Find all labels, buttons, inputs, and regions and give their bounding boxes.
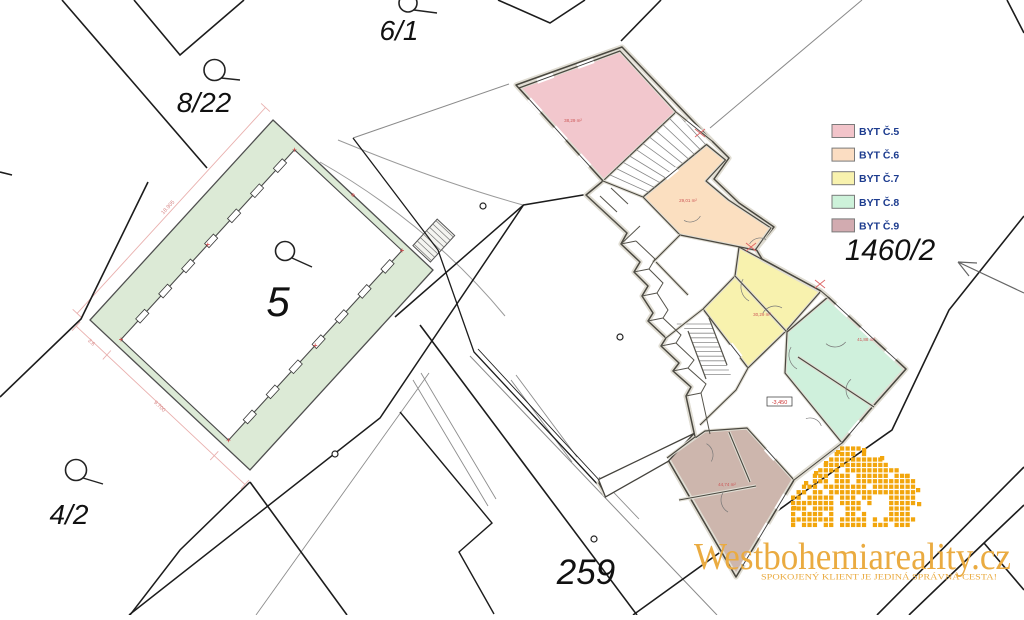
svg-text:BYT Č.5: BYT Č.5 [859, 125, 899, 138]
svg-text:44,74 m²: 44,74 m² [718, 482, 736, 487]
svg-text:30,29 m²: 30,29 m² [753, 312, 771, 317]
svg-text:-3,450: -3,450 [772, 400, 788, 406]
svg-text:BYT Č.6: BYT Č.6 [859, 149, 899, 162]
svg-text:38,29 m²: 38,29 m² [564, 118, 582, 123]
svg-text:5: 5 [266, 278, 290, 325]
svg-text:41,88 m²: 41,88 m² [857, 337, 875, 342]
svg-text:1460/2: 1460/2 [845, 234, 935, 267]
svg-text:6/1: 6/1 [380, 15, 419, 46]
svg-text:29,01 m²: 29,01 m² [679, 198, 697, 203]
svg-text:BYT Č.7: BYT Č.7 [859, 172, 899, 185]
svg-text:BYT Č.9: BYT Č.9 [859, 219, 899, 232]
svg-text:BYT Č.8: BYT Č.8 [859, 196, 899, 209]
svg-text:259: 259 [556, 553, 615, 592]
svg-text:4/2: 4/2 [50, 499, 89, 530]
svg-text:SPOKOJENÝ KLIENT JE JEDINÁ SPR: SPOKOJENÝ KLIENT JE JEDINÁ SPRÁVNÁ CESTA… [761, 572, 997, 582]
svg-text:8/22: 8/22 [177, 87, 232, 118]
